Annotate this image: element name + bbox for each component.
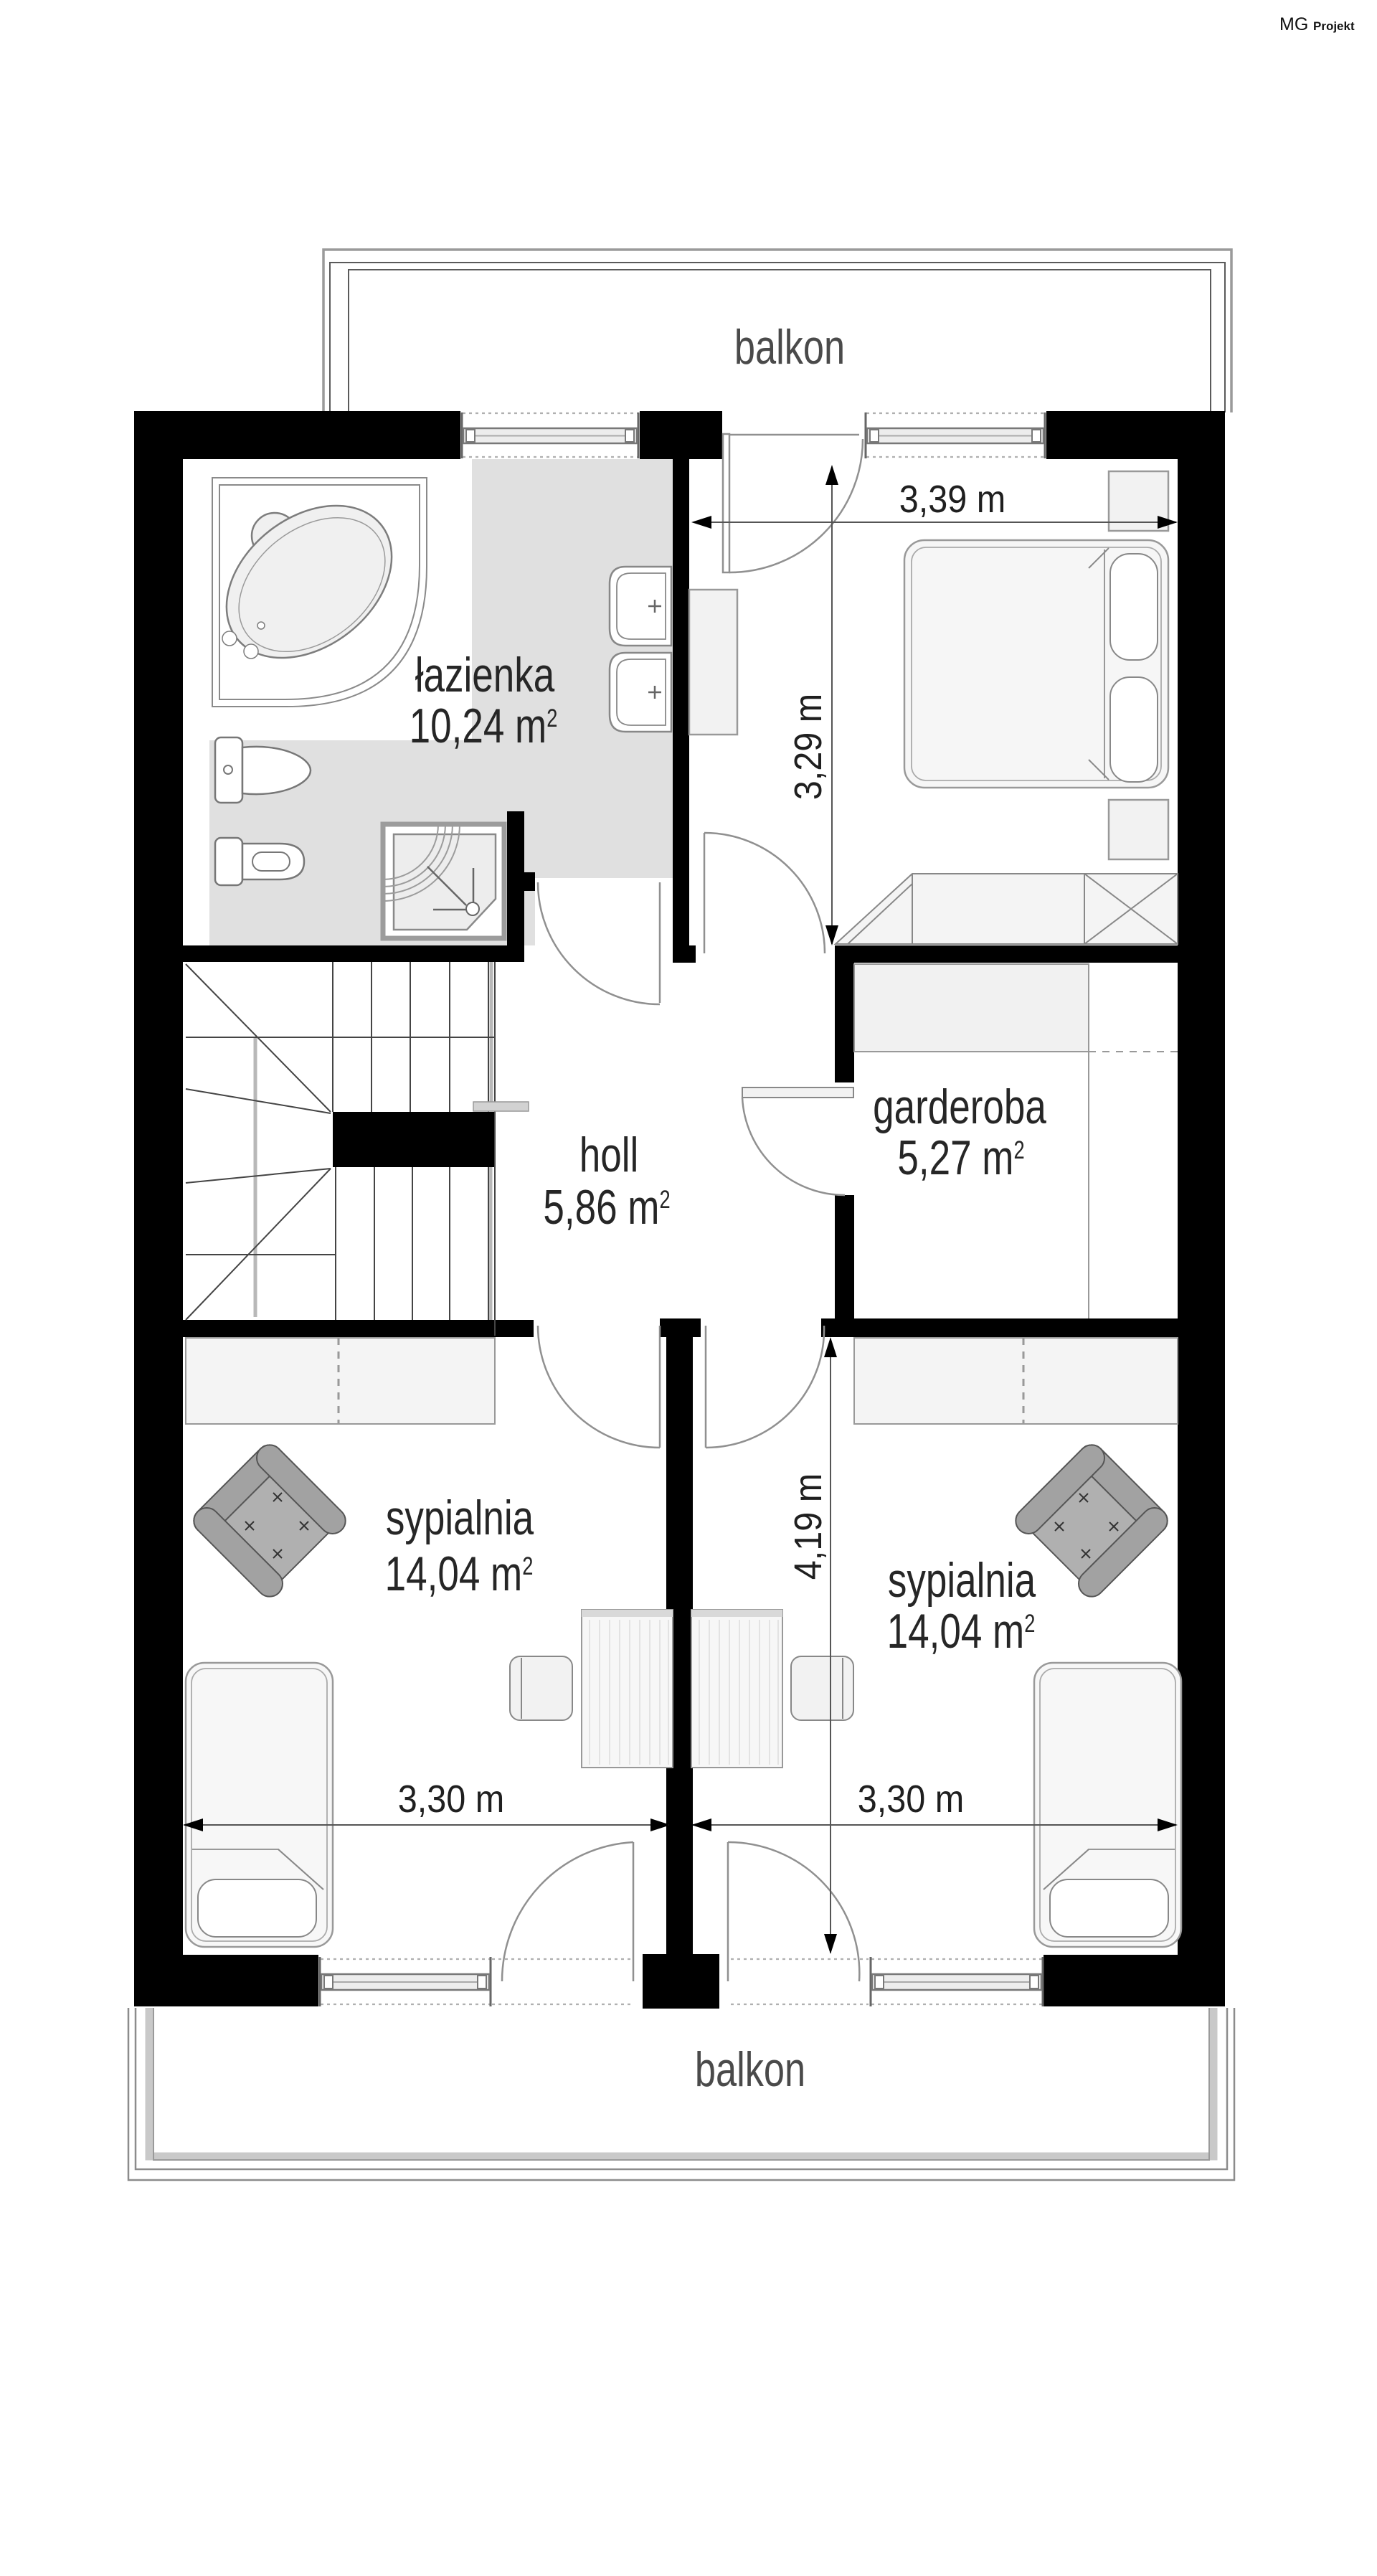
svg-text:3,29 m: 3,29 m xyxy=(786,694,830,801)
svg-text:Projekt: Projekt xyxy=(1313,19,1355,33)
svg-text:sypialnia: sypialnia xyxy=(386,1491,534,1545)
svg-text:14,04 m2: 14,04 m2 xyxy=(385,1547,534,1601)
svg-text:10,24 m2: 10,24 m2 xyxy=(410,699,558,753)
svg-text:holl: holl xyxy=(579,1128,639,1182)
svg-text:balkon: balkon xyxy=(695,2042,805,2096)
svg-text:3,39 m: 3,39 m xyxy=(899,477,1006,521)
svg-text:garderoba: garderoba xyxy=(873,1080,1046,1134)
svg-text:sypialnia: sypialnia xyxy=(888,1553,1036,1608)
svg-text:3,30 m: 3,30 m xyxy=(858,1777,965,1821)
svg-text:14,04 m2: 14,04 m2 xyxy=(887,1604,1036,1659)
svg-text:5,27 m2: 5,27 m2 xyxy=(897,1131,1024,1185)
svg-text:MG: MG xyxy=(1279,14,1308,34)
svg-text:łazienka: łazienka xyxy=(415,648,555,702)
svg-text:4,19 m: 4,19 m xyxy=(786,1473,830,1580)
svg-text:3,30 m: 3,30 m xyxy=(398,1777,505,1821)
svg-text:balkon: balkon xyxy=(734,319,845,374)
svg-text:5,86 m2: 5,86 m2 xyxy=(543,1180,670,1235)
